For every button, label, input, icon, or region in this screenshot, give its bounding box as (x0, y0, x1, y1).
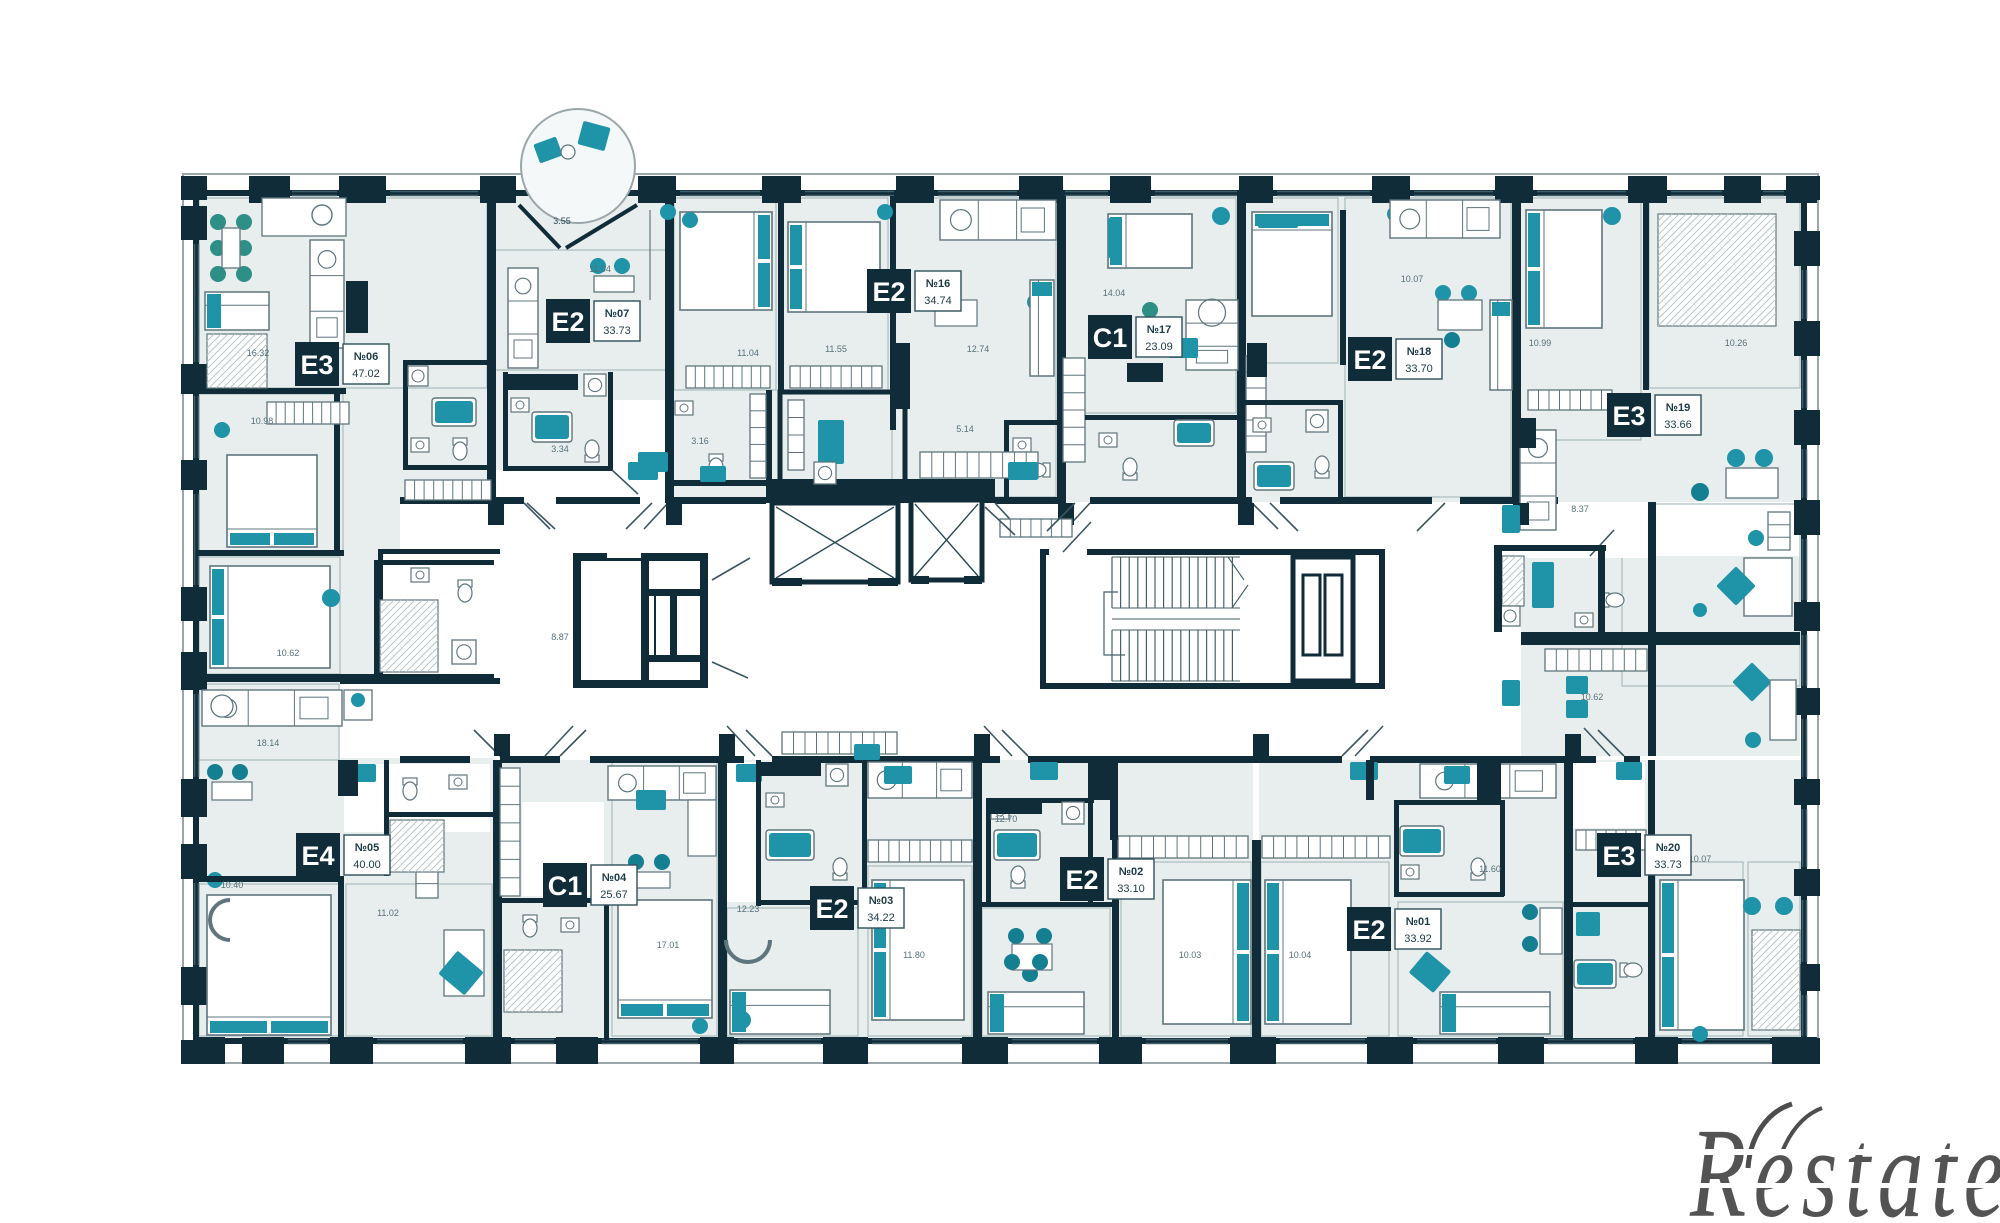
svg-text:12.70: 12.70 (995, 814, 1018, 824)
svg-text:№05: №05 (355, 842, 380, 854)
svg-text:14.04: 14.04 (1103, 288, 1126, 298)
svg-text:47.02: 47.02 (352, 368, 380, 380)
svg-text:3.55: 3.55 (553, 216, 571, 226)
svg-text:33.92: 33.92 (1404, 933, 1432, 945)
svg-text:11.55: 11.55 (825, 344, 847, 354)
svg-text:№03: №03 (869, 895, 894, 907)
svg-text:10.07: 10.07 (1401, 274, 1424, 284)
svg-text:№16: №16 (926, 278, 951, 290)
svg-text:E3: E3 (300, 350, 333, 380)
svg-text:C1: C1 (1093, 323, 1128, 353)
svg-text:33.73: 33.73 (603, 325, 631, 337)
svg-text:№01: №01 (1406, 916, 1431, 928)
svg-text:10.99: 10.99 (1529, 338, 1552, 348)
svg-text:E2: E2 (872, 277, 905, 307)
svg-text:№19: №19 (1666, 402, 1691, 414)
svg-text:12.74: 12.74 (967, 344, 990, 354)
svg-text:C1: C1 (548, 871, 583, 901)
svg-text:E3: E3 (1612, 401, 1645, 431)
svg-text:№20: №20 (1656, 842, 1681, 854)
svg-text:Restate: Restate (1689, 1104, 2000, 1223)
svg-text:10.07: 10.07 (1689, 854, 1712, 864)
svg-text:10.40: 10.40 (221, 880, 244, 890)
svg-text:11.04: 11.04 (589, 264, 611, 274)
svg-text:5.14: 5.14 (956, 424, 974, 434)
svg-text:E2: E2 (815, 894, 848, 924)
svg-text:17.01: 17.01 (657, 940, 680, 950)
svg-text:10.62: 10.62 (1581, 692, 1604, 702)
svg-text:11.80: 11.80 (903, 950, 925, 960)
svg-text:12.23: 12.23 (737, 904, 760, 914)
svg-text:10.03: 10.03 (1179, 950, 1202, 960)
svg-text:E4: E4 (301, 841, 334, 871)
svg-text:E2: E2 (1065, 865, 1098, 895)
svg-text:10.62: 10.62 (277, 648, 300, 658)
svg-text:25.67: 25.67 (600, 889, 628, 901)
svg-text:33.70: 33.70 (1405, 363, 1433, 375)
svg-text:33.66: 33.66 (1664, 419, 1692, 431)
svg-text:8.37: 8.37 (1571, 504, 1589, 514)
svg-text:№18: №18 (1407, 346, 1432, 358)
svg-text:33.73: 33.73 (1654, 859, 1682, 871)
svg-text:10.26: 10.26 (1725, 338, 1748, 348)
svg-text:№07: №07 (605, 308, 630, 320)
svg-text:40.00: 40.00 (353, 859, 381, 871)
svg-text:№04: №04 (602, 872, 627, 884)
svg-text:№06: №06 (354, 351, 379, 363)
svg-text:34.74: 34.74 (924, 295, 952, 307)
svg-text:11.04: 11.04 (737, 348, 759, 358)
svg-text:8.87: 8.87 (551, 632, 569, 642)
svg-text:10.98: 10.98 (251, 416, 274, 426)
svg-text:3.34: 3.34 (551, 444, 569, 454)
svg-text:34.22: 34.22 (867, 912, 895, 924)
svg-text:E3: E3 (1602, 841, 1635, 871)
svg-text:23.09: 23.09 (1145, 341, 1173, 353)
svg-text:E2: E2 (551, 307, 584, 337)
svg-text:10.04: 10.04 (1289, 950, 1312, 960)
svg-text:3.16: 3.16 (691, 436, 709, 446)
svg-text:11.02: 11.02 (377, 908, 399, 918)
svg-text:11.60: 11.60 (1479, 864, 1501, 874)
svg-text:18.14: 18.14 (257, 738, 280, 748)
svg-text:E2: E2 (1353, 345, 1386, 375)
svg-text:E2: E2 (1352, 915, 1385, 945)
svg-text:33.10: 33.10 (1117, 883, 1145, 895)
svg-text:№02: №02 (1119, 866, 1144, 878)
svg-text:№17: №17 (1147, 324, 1172, 336)
svg-text:16.32: 16.32 (247, 348, 270, 358)
